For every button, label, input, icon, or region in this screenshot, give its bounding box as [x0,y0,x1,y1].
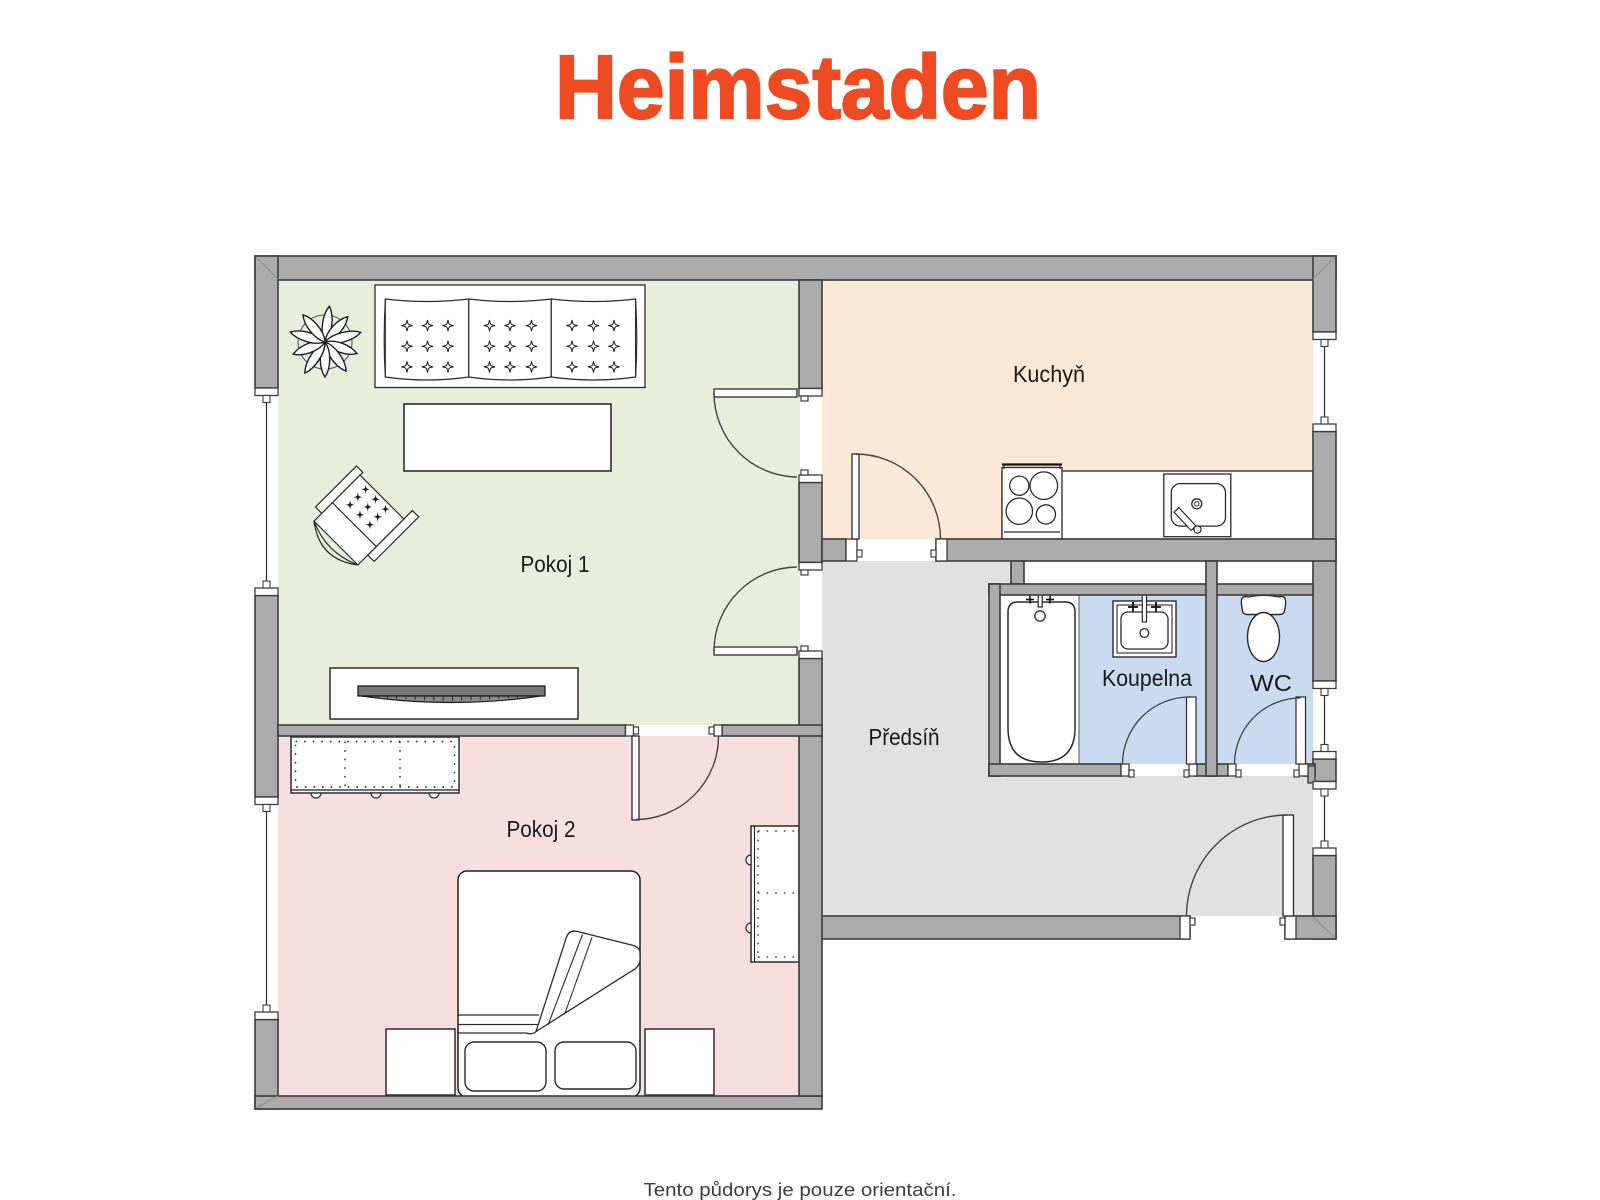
svg-text:WC: WC [1250,670,1292,696]
svg-text:Koupelna: Koupelna [1102,665,1192,691]
svg-text:Předsíň: Předsíň [869,724,940,750]
svg-text:Tento půdorys je pouze orienta: Tento půdorys je pouze orientační. [644,1180,957,1200]
svg-text:Pokoj 1: Pokoj 1 [521,551,590,577]
svg-text:Kuchyň: Kuchyň [1013,361,1085,387]
svg-text:Pokoj 2: Pokoj 2 [507,816,576,842]
svg-text:Heimstaden: Heimstaden [555,38,1041,138]
